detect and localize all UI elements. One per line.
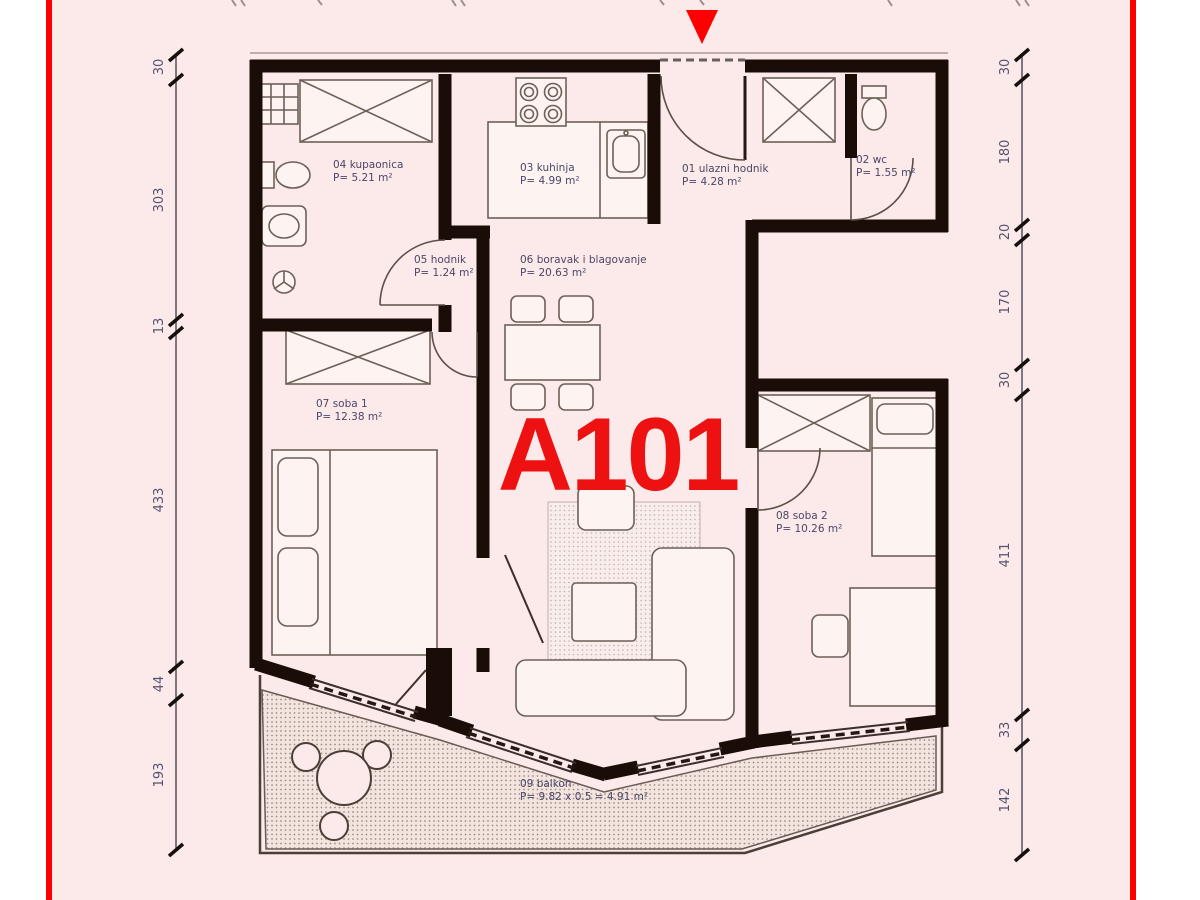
dim-left-2: 13 xyxy=(152,318,167,335)
floor-plan-page: 30 303 13 433 44 193 30 180 20 170 30 41… xyxy=(0,0,1200,900)
dim-right-4: 30 xyxy=(998,372,1013,389)
coffee-table xyxy=(572,583,636,641)
room-label-03-name: 03 kuhinja xyxy=(520,162,575,174)
bedroom1-furniture xyxy=(272,330,437,655)
room-label-02-area: P= 1.55 m² xyxy=(856,167,916,179)
dim-left-4: 44 xyxy=(152,676,167,693)
wc-bowl xyxy=(862,98,886,130)
room-label-06-name: 06 boravak i blagovanje xyxy=(520,254,647,266)
room-label-05-name: 05 hodnik xyxy=(414,254,467,266)
pillow xyxy=(278,548,318,626)
room-label-01-area: P= 4.28 m² xyxy=(682,176,742,188)
dim-right-5: 411 xyxy=(998,543,1013,568)
sofa-seat xyxy=(516,660,686,716)
room-label-08-area: P= 10.26 m² xyxy=(776,523,842,535)
dining-table xyxy=(505,325,600,380)
room-label-09-area: P= 9.82 x 0.5 = 4.91 m² xyxy=(520,791,648,803)
room-label-03-area: P= 4.99 m² xyxy=(520,175,580,187)
unit-number: A101 xyxy=(498,397,739,513)
dim-left-3: 433 xyxy=(152,488,167,513)
wc-tank xyxy=(862,86,886,98)
room-label-01-name: 01 ulazni hodnik xyxy=(682,163,769,175)
washing-machine xyxy=(258,84,298,124)
room-label-06-area: P= 20.63 m² xyxy=(520,267,586,279)
pillow xyxy=(278,458,318,536)
room-label-09-name: 09 balkon xyxy=(520,778,572,790)
room-label-04-area: P= 5.21 m² xyxy=(333,172,393,184)
toilet-bowl xyxy=(276,162,310,188)
dim-left-5: 193 xyxy=(152,763,167,788)
dim-left-1: 303 xyxy=(152,188,167,213)
dim-right-2: 20 xyxy=(998,224,1013,241)
dim-right-6: 33 xyxy=(998,722,1013,739)
room-label-04-name: 04 kupaonica xyxy=(333,159,403,171)
dim-left-0: 30 xyxy=(152,59,167,76)
floor-plan: 30 303 13 433 44 193 30 180 20 170 30 41… xyxy=(0,0,1200,900)
dim-right-1: 180 xyxy=(998,140,1013,165)
room-label-07-name: 07 soba 1 xyxy=(316,398,368,410)
dim-right-0: 30 xyxy=(998,59,1013,76)
chair xyxy=(812,615,848,657)
pillow xyxy=(877,404,933,434)
room-label-07-area: P= 12.38 m² xyxy=(316,411,382,423)
room-label-05-area: P= 1.24 m² xyxy=(414,267,474,279)
desk xyxy=(850,588,938,706)
round-table xyxy=(317,751,371,805)
dim-right-3: 170 xyxy=(998,290,1013,315)
dim-right-7: 142 xyxy=(998,788,1013,813)
room-label-08-name: 08 soba 2 xyxy=(776,510,828,522)
room-label-02-name: 02 wc xyxy=(856,154,887,166)
